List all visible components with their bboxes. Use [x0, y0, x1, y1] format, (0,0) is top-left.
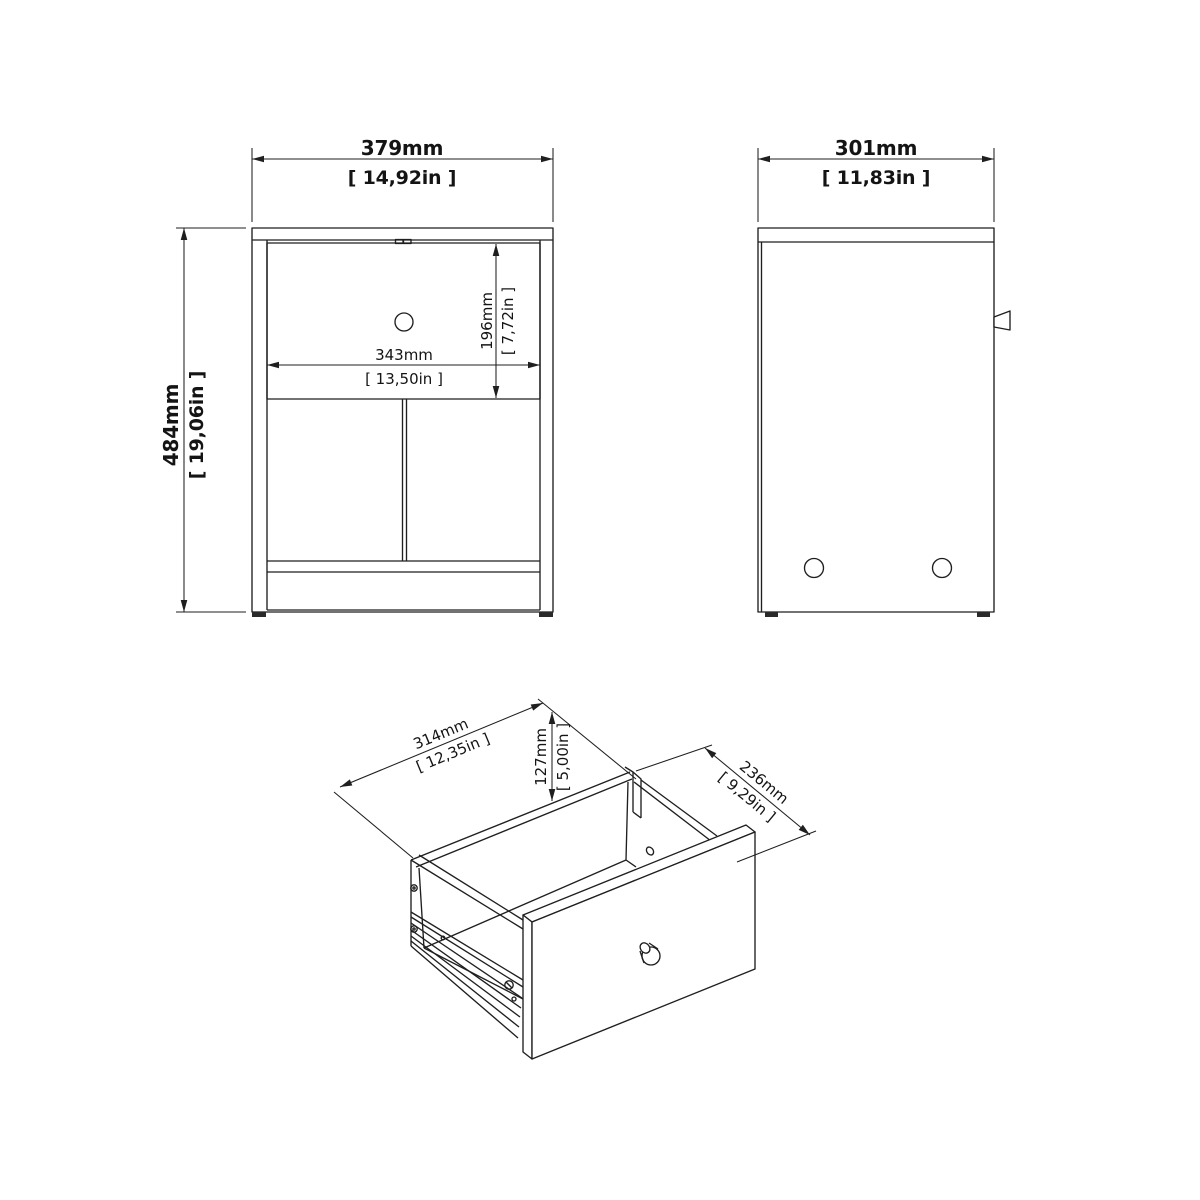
front-left-foot — [252, 612, 266, 617]
technical-drawing-page: 379mm [ 14,92in ] 484mm [ 19,06in ] 343m… — [0, 0, 1200, 1200]
front-top-notch-right — [404, 240, 412, 244]
drawer-right-side-top-edges — [634, 780, 717, 841]
drawer-height-dimension: 196mm [ 7,72in ] — [478, 244, 517, 398]
front-view-body — [252, 228, 553, 617]
side-cam-fitting-right — [933, 559, 952, 578]
front-width-dimension: 379mm [ 14,92in ] — [252, 136, 553, 222]
drawer-height-label-in: [ 7,72in ] — [499, 287, 517, 355]
drawer-iso-height-label-mm: 127mm — [532, 728, 550, 786]
drawer-iso-box — [411, 767, 755, 1059]
side-knob-profile — [994, 311, 1010, 330]
side-depth-label-mm: 301mm — [835, 136, 917, 160]
side-right-foot — [977, 612, 990, 617]
front-width-label-mm: 379mm — [361, 136, 443, 160]
side-left-foot — [765, 612, 778, 617]
drawer-width-label-in: [ 13,50in ] — [365, 370, 443, 388]
front-width-label-in: [ 14,92in ] — [348, 167, 457, 189]
drawer-iso-view: 314mm [ 12,35in ] 127mm [ 5,00in ] 236mm… — [334, 699, 816, 1059]
front-right-foot — [539, 612, 553, 617]
drawer-iso-width-dimension: 314mm [ 12,35in ] — [334, 699, 636, 858]
side-depth-dimension: 301mm [ 11,83in ] — [758, 136, 994, 222]
front-drawer-knob — [395, 313, 413, 331]
drawer-iso-height-label-in: [ 5,00in ] — [554, 723, 572, 791]
side-cam-fitting-left — [805, 559, 824, 578]
front-height-label-in: [ 19,06in ] — [186, 371, 208, 480]
side-view-body — [758, 228, 1010, 617]
front-top-notch-left — [396, 240, 404, 244]
drawer-front-panel — [523, 825, 755, 1059]
side-depth-label-in: [ 11,83in ] — [822, 167, 931, 189]
drawer-width-label-mm: 343mm — [375, 346, 433, 364]
drawer-slide-rail — [411, 912, 523, 1038]
drawer-dowel-hole — [645, 846, 655, 857]
front-height-label-mm: 484mm — [159, 384, 183, 466]
front-height-dimension: 484mm [ 19,06in ] — [159, 228, 246, 612]
side-view: 301mm [ 11,83in ] — [758, 136, 1010, 617]
drawer-left-side-top-edges — [411, 855, 523, 946]
side-outline — [758, 228, 994, 612]
front-view: 379mm [ 14,92in ] 484mm [ 19,06in ] 343m… — [159, 136, 553, 617]
drawer-iso-height-dimension: 127mm [ 5,00in ] — [532, 712, 572, 801]
drawer-back-rim — [411, 772, 632, 867]
drawer-height-label-mm: 196mm — [478, 292, 496, 350]
drawing-svg: 379mm [ 14,92in ] 484mm [ 19,06in ] 343m… — [0, 0, 1200, 1200]
